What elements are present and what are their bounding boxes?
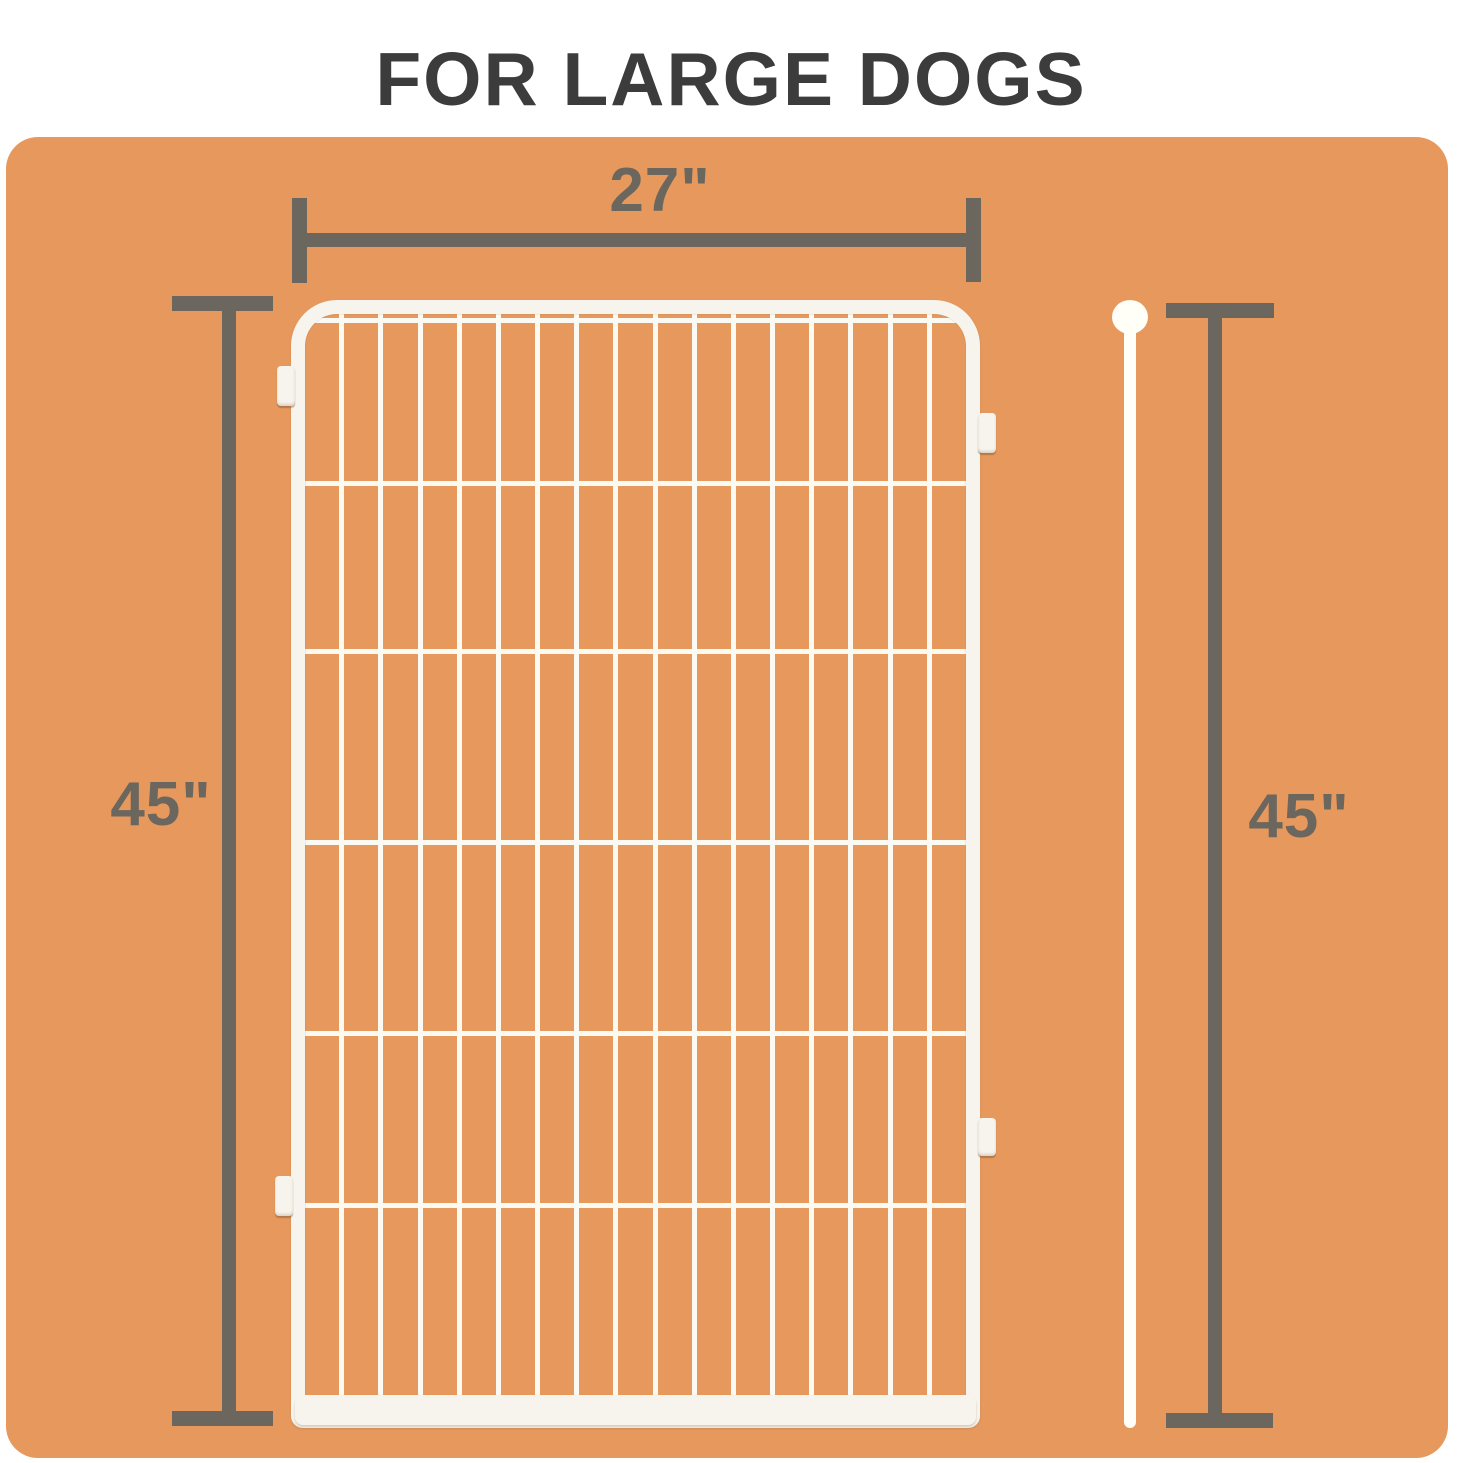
panel-connector-tab-left-bottom: [275, 1176, 293, 1216]
right-height-dimension-top-cap: [1166, 303, 1274, 318]
panel-connector-tab-right-bottom: [978, 1118, 996, 1156]
right-height-dimension-bottom-cap: [1166, 1413, 1273, 1428]
panel-bottom-bar: [295, 1395, 976, 1425]
width-dimension-line: [300, 233, 974, 247]
width-dimension-left-cap: [292, 198, 307, 283]
width-dimension-right-cap: [966, 198, 981, 282]
width-dimension-label: 27": [560, 160, 760, 222]
pen-panel: [291, 300, 980, 1428]
panel-connector-tab-left-top: [277, 366, 295, 406]
page-title: FOR LARGE DOGS: [0, 42, 1462, 117]
left-height-dimension-line: [222, 300, 236, 1420]
panel-frame: [291, 300, 980, 1428]
left-height-dimension-bottom-cap: [172, 1411, 273, 1426]
corner-rod: [1124, 310, 1136, 1428]
right-height-dimension-line: [1208, 305, 1222, 1420]
right-height-dimension-label: 45": [1199, 786, 1399, 848]
panel-connector-tab-right-top: [978, 413, 996, 453]
left-height-dimension-top-cap: [172, 296, 273, 311]
corner-rod-ball-top: [1112, 300, 1148, 334]
